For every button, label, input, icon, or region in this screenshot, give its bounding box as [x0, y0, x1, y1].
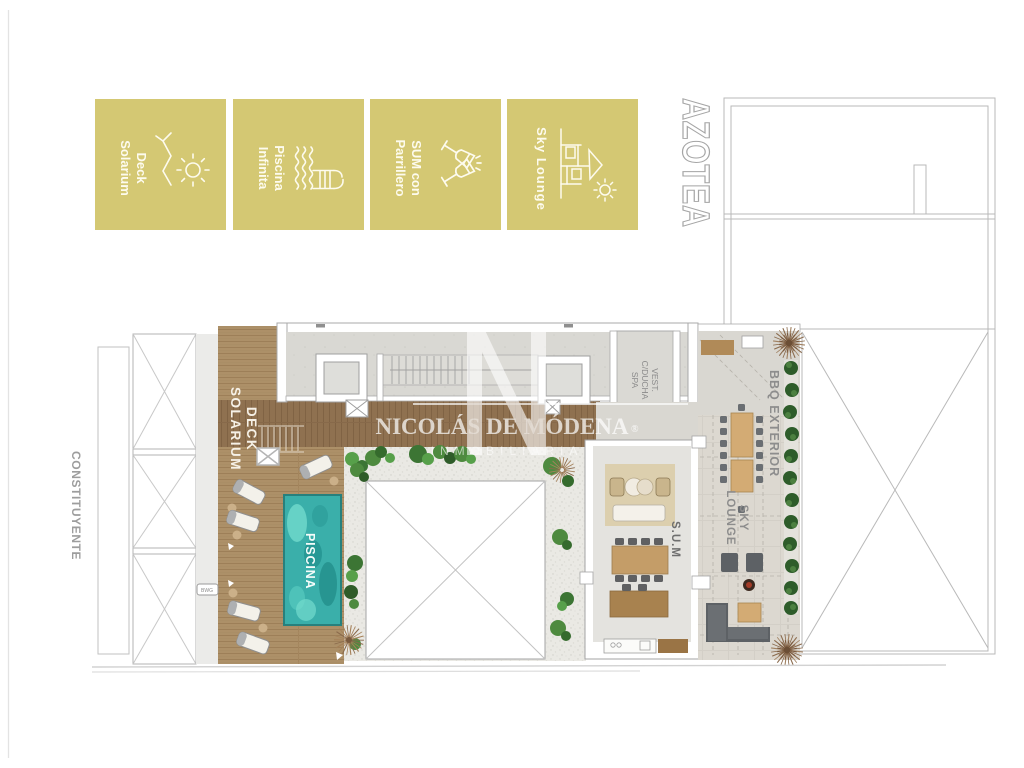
svg-text:DECK: DECK — [244, 407, 259, 451]
svg-text:Sky Lounge: Sky Lounge — [534, 127, 549, 211]
svg-text:SUM con: SUM con — [409, 140, 424, 196]
svg-text:LOUNGE: LOUNGE — [724, 490, 736, 545]
svg-text:SOLARIUM: SOLARIUM — [228, 387, 243, 471]
svg-text:PISCINA: PISCINA — [303, 533, 317, 589]
svg-text:CONSTITUYENTE: CONSTITUYENTE — [69, 451, 83, 560]
svg-text:Parrillero: Parrillero — [393, 139, 408, 196]
svg-text:AZOTEA: AZOTEA — [674, 98, 716, 228]
svg-text:SKY: SKY — [737, 505, 749, 532]
svg-text:Piscina: Piscina — [272, 145, 287, 191]
svg-text:INMOBILIARIA: INMOBILIARIA — [431, 444, 584, 458]
svg-text:C/DUCHA: C/DUCHA — [640, 361, 650, 400]
svg-text:S.U.M: S.U.M — [669, 521, 681, 558]
svg-text:BWG: BWG — [201, 588, 213, 594]
svg-text:Deck: Deck — [134, 152, 149, 184]
svg-text:SPA: SPA — [630, 372, 640, 389]
svg-text:Infinita: Infinita — [256, 147, 271, 190]
svg-text:Solarium: Solarium — [118, 140, 133, 196]
svg-text:VEST.: VEST. — [650, 368, 660, 392]
svg-text:NICOLÁS DE MÓDENA ®: NICOLÁS DE MÓDENA ® — [375, 413, 639, 439]
svg-text:BBQ EXTERIOR: BBQ EXTERIOR — [767, 370, 781, 477]
